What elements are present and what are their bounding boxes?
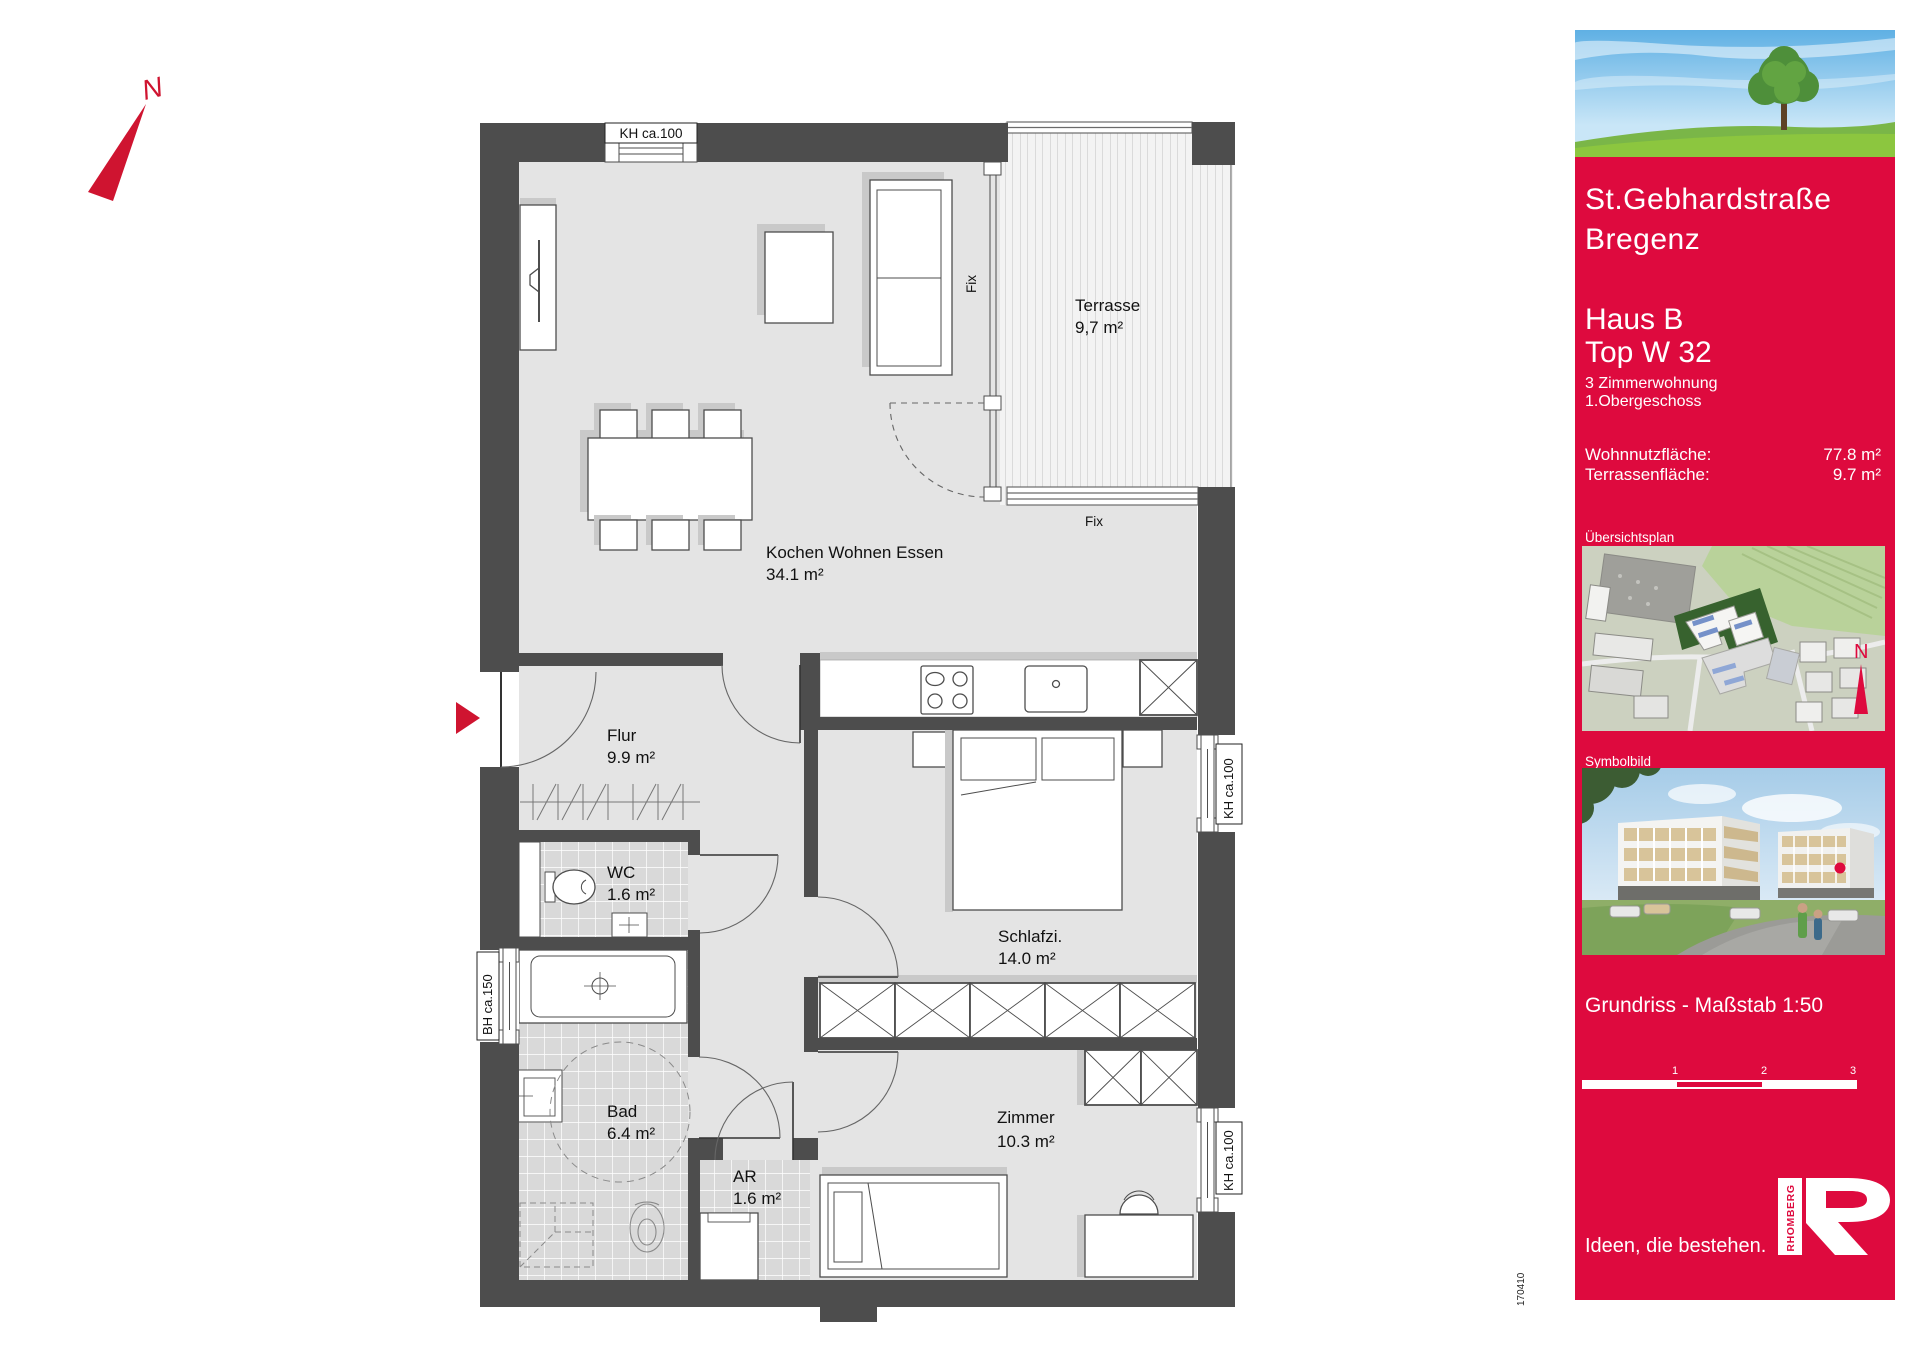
area-value: 9.7 m² <box>1833 465 1881 485</box>
overview-label: Übersichtsplan <box>1585 530 1881 545</box>
building-left <box>1618 816 1760 900</box>
area-table: Wohnnutzfläche: 77.8 m² Terrassenfläche:… <box>1585 445 1881 485</box>
unit-type-line: 3 Zimmerwohnung <box>1585 375 1881 393</box>
window-right-lower-label: KH ca.100 <box>1221 1130 1236 1191</box>
room-terrasse: Terrasse <box>1075 296 1140 315</box>
window-top-label: KH ca.100 <box>619 126 682 141</box>
area-row-living: Wohnnutzfläche: 77.8 m² <box>1585 445 1881 465</box>
unit-block: Haus B Top W 32 3 Zimmerwohnung 1.Oberge… <box>1585 303 1881 410</box>
bathtub <box>519 950 687 1023</box>
window-top: KH ca.100 <box>605 123 697 162</box>
zimmer-wardrobe <box>1077 1050 1197 1105</box>
house-label: Haus B <box>1585 303 1881 336</box>
unit-marker-dot <box>1835 863 1846 874</box>
room-wc: WC <box>607 863 635 882</box>
window-right-upper-label: KH ca.100 <box>1221 758 1236 819</box>
room-flur-area: 9.9 m² <box>607 748 656 767</box>
room-zimmer-area: 10.3 m² <box>997 1132 1055 1151</box>
room-zimmer: Zimmer <box>997 1108 1055 1127</box>
room-wohnen: Kochen Wohnen Essen <box>766 543 943 562</box>
scale-bar: 1 2 3 <box>1582 1065 1857 1091</box>
slogan: Ideen, die bestehen. <box>1585 1235 1881 1258</box>
floor-line: 1.Obergeschoss <box>1585 393 1881 411</box>
washbasin <box>513 1070 562 1122</box>
project-title-line2: Bregenz <box>1585 220 1881 260</box>
scale-title: Grundriss - Maßstab 1:50 <box>1585 994 1881 1018</box>
scale-tick-3: 3 <box>1850 1065 1856 1077</box>
floorplan-page: N <box>0 0 1920 1357</box>
window-right-upper: KH ca.100 <box>1197 735 1242 832</box>
area-value: 77.8 m² <box>1823 445 1881 465</box>
unit-type: 3 Zimmerwohnung 1.Obergeschoss <box>1585 375 1881 410</box>
floorplan-drawing: N <box>0 0 1560 1357</box>
unit-label: Top W 32 <box>1585 336 1881 369</box>
sideboard <box>757 224 833 323</box>
dining-table <box>580 403 752 550</box>
window-right-lower: KH ca.100 <box>1197 1108 1242 1212</box>
scale-tick-1: 1 <box>1672 1065 1678 1077</box>
room-schlafzi-area: 14.0 m² <box>998 949 1056 968</box>
window-left: BH ca.150 <box>477 948 519 1044</box>
tree-photo <box>1575 30 1895 157</box>
room-wohnen-area: 34.1 m² <box>766 565 824 584</box>
single-bed <box>820 1167 1007 1277</box>
kitchen-counter <box>820 652 1197 717</box>
project-title: St.Gebhardstraße Bregenz <box>1585 180 1881 260</box>
entry-arrow-icon <box>456 702 480 734</box>
kitchen-shaft <box>1140 660 1197 715</box>
room-ar-area: 1.6 m² <box>733 1189 782 1208</box>
fix-label-vertical: Fix <box>964 275 979 293</box>
svg-text:N: N <box>1854 641 1868 663</box>
project-title-line1: St.Gebhardstraße <box>1585 180 1881 220</box>
building-right <box>1778 828 1874 898</box>
room-flur: Flur <box>607 726 637 745</box>
room-terrasse-area: 9,7 m² <box>1075 318 1124 337</box>
tv-board <box>520 198 556 350</box>
sidebar-panel: St.Gebhardstraße Bregenz Haus B Top W 32… <box>1575 157 1895 1300</box>
bedroom-closet <box>818 975 1197 1038</box>
window-left-label: BH ca.150 <box>480 974 495 1035</box>
symbol-image <box>1582 768 1885 955</box>
washing-machine <box>700 1213 758 1280</box>
area-label: Wohnnutzfläche: <box>1585 445 1711 465</box>
room-schlafzi: Schlafzi. <box>998 927 1062 946</box>
compass-label: N <box>139 71 167 106</box>
symbol-label: Symbolbild <box>1585 754 1881 769</box>
plan-number: 170410 <box>1516 1292 1556 1306</box>
room-bad-area: 6.4 m² <box>607 1124 656 1143</box>
area-row-terrace: Terrassenfläche: 9.7 m² <box>1585 465 1881 485</box>
compass-icon: N <box>88 71 167 201</box>
room-ar: AR <box>733 1167 757 1186</box>
fix-label-bottom: Fix <box>1085 514 1103 529</box>
area-label: Terrassenfläche: <box>1585 465 1710 485</box>
overview-map: N <box>1582 546 1885 731</box>
scale-tick-2: 2 <box>1761 1065 1767 1077</box>
info-sidebar: St.Gebhardstraße Bregenz Haus B Top W 32… <box>1575 30 1895 1300</box>
room-wc-area: 1.6 m² <box>607 885 656 904</box>
sofa <box>862 172 952 375</box>
scale-bar-segment <box>1675 1080 1764 1089</box>
room-bad: Bad <box>607 1102 637 1121</box>
